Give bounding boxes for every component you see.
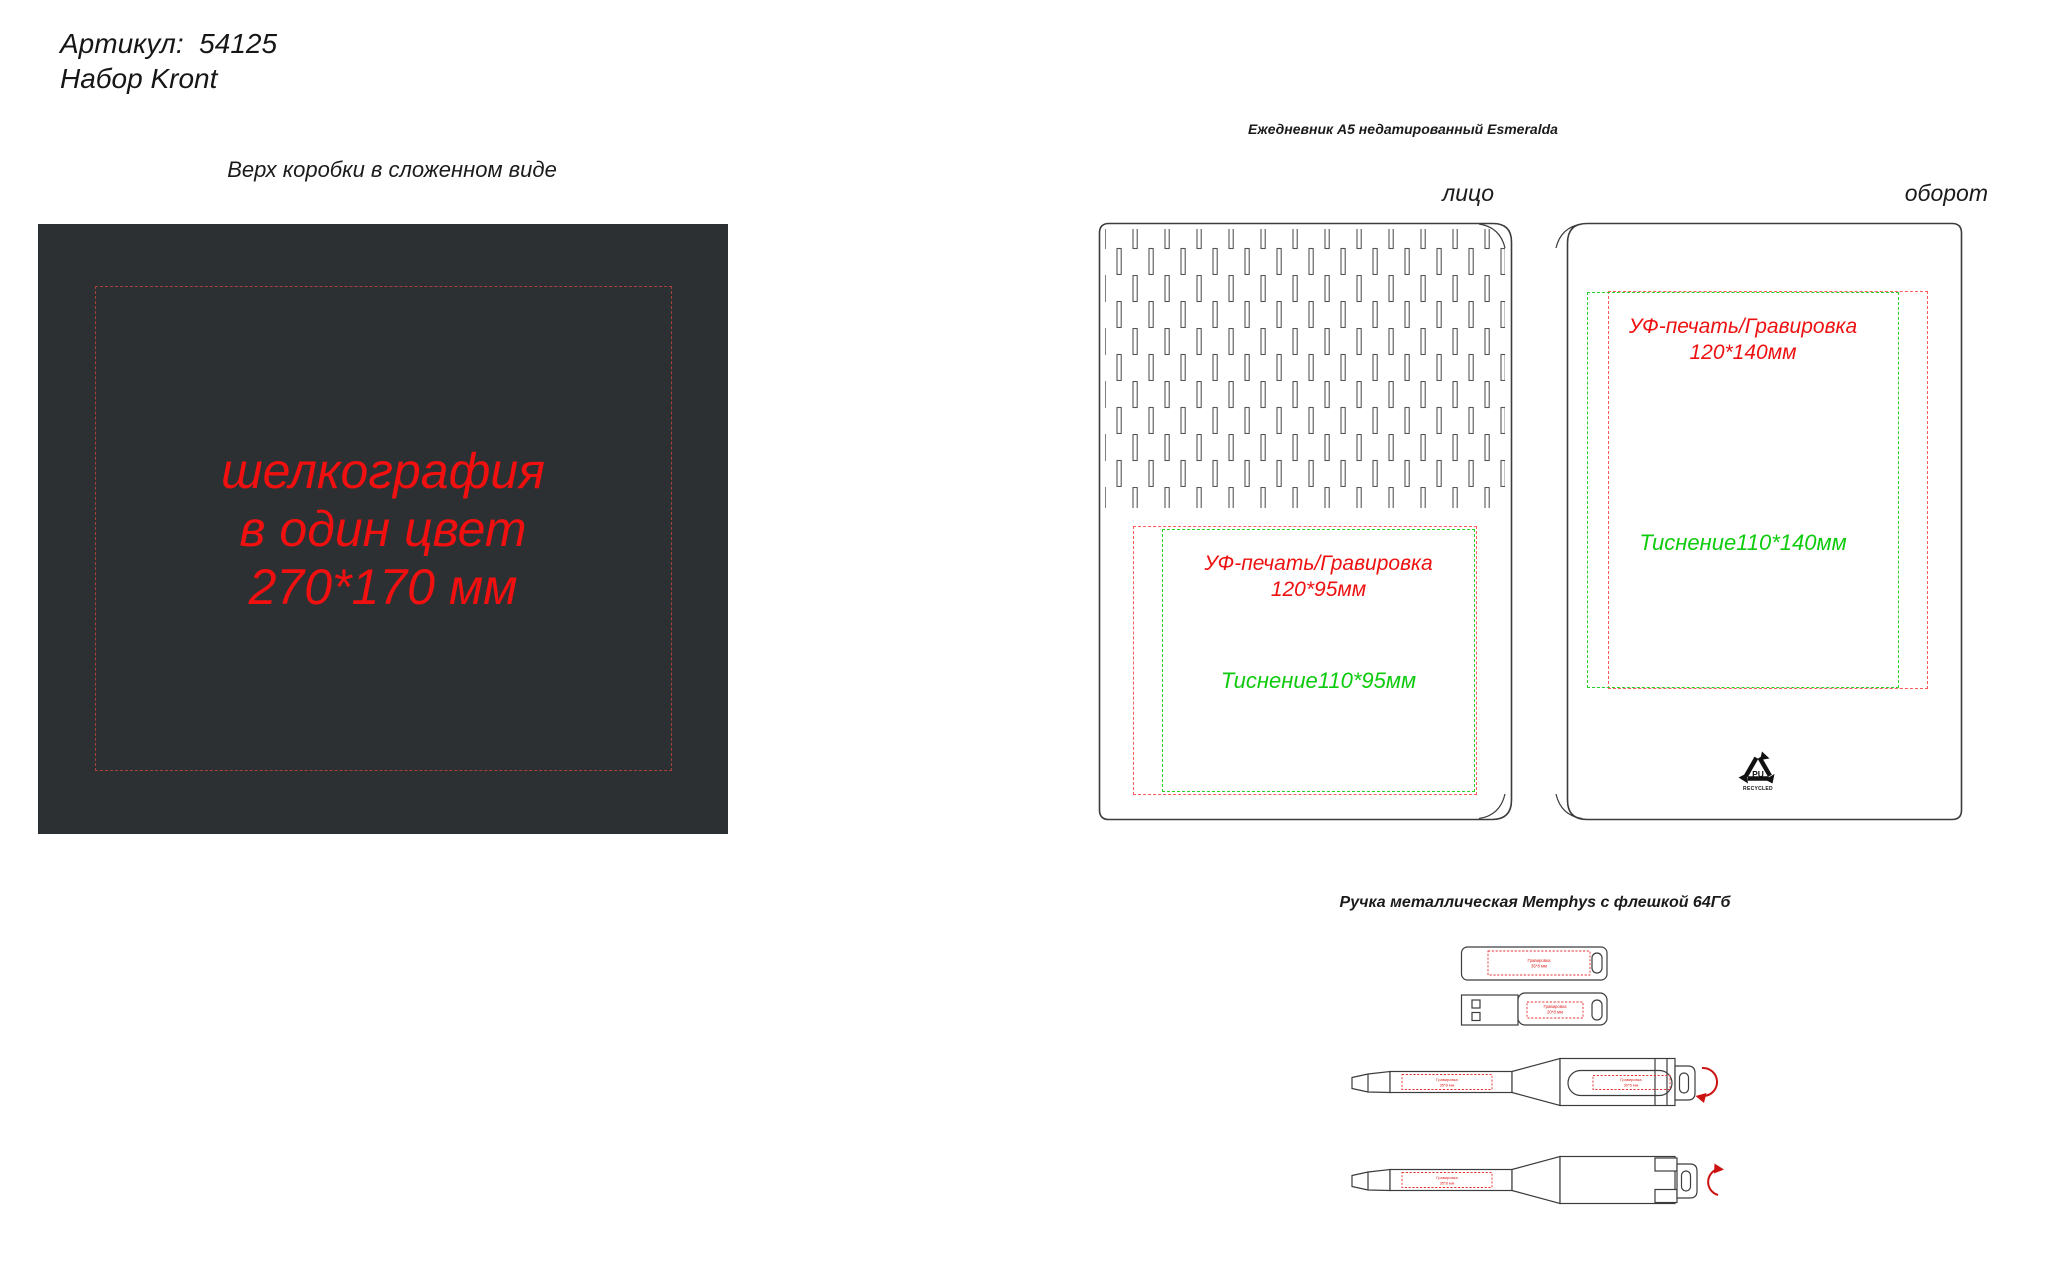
- box-top-view: шелкография в один цвет 270*170 мм: [38, 224, 728, 834]
- silkscreen-note-line: в один цвет: [38, 500, 728, 558]
- engraving-size: 30*5 мм: [1624, 1083, 1639, 1088]
- pen-section-caption: Ручка металлическая Memphys с флешкой 64…: [1325, 894, 1745, 912]
- back-emboss-note: Тиснение110*140мм: [1587, 530, 1899, 556]
- article-number: Артикул: 54125: [60, 26, 277, 61]
- diary-back-label: оборот: [1838, 180, 1988, 207]
- pen-clip: [1568, 1071, 1672, 1096]
- pen-back-side-view: Гравировка 35*8 мм: [1350, 1153, 1722, 1209]
- front-uv-size: 120*95мм: [1162, 577, 1475, 603]
- engraving-note: Гравировка: [1436, 1077, 1458, 1082]
- lanyard-slot-icon: [1682, 1171, 1691, 1191]
- silkscreen-note-line: 270*170 мм: [38, 558, 728, 616]
- engraving-size: 35*8 мм: [1440, 1181, 1455, 1186]
- header: Артикул: 54125 Набор Kront: [60, 26, 277, 96]
- back-uv-size: 120*140мм: [1587, 340, 1899, 366]
- pen-clip-side-view: Гравировка 35*8 мм Гравировка 30*5 мм: [1350, 1055, 1722, 1111]
- engraving-size: 35*8 мм: [1440, 1083, 1455, 1088]
- engraving-size: 20*8 мм: [1547, 1010, 1563, 1015]
- back-uv-method: УФ-печать/Гравировка: [1587, 314, 1899, 340]
- box-section-caption: Верх коробки в сложенном виде: [182, 157, 602, 183]
- rotate-arrow-icon: [1696, 1068, 1718, 1103]
- recycle-material-code: PU: [1752, 769, 1764, 779]
- usb-plug-icon: [1462, 995, 1519, 1025]
- diary-front-label: лицо: [1344, 180, 1494, 207]
- clip-mount-notch: [1655, 1190, 1677, 1203]
- clip-mount-notch: [1655, 1158, 1677, 1171]
- engraving-note: Гравировка: [1620, 1077, 1642, 1082]
- pen-tip: [1352, 1170, 1390, 1191]
- pen-tip: [1352, 1072, 1390, 1093]
- engraving-size: 35*8 мм: [1531, 964, 1547, 969]
- engraving-note: Гравировка: [1528, 958, 1552, 963]
- diary-section-caption: Ежедневник А5 недатированный Esmeralda: [1188, 121, 1618, 137]
- engraving-note: Гравировка: [1436, 1175, 1458, 1180]
- product-name: Набор Kront: [60, 61, 277, 96]
- silkscreen-note: шелкография в один цвет 270*170 мм: [38, 442, 728, 616]
- lanyard-slot-icon: [1592, 953, 1602, 973]
- recycle-caption: RECYCLED: [1743, 786, 1773, 792]
- flash-drive-top-view: Гравировка 35*8 мм: [1461, 946, 1608, 981]
- cover-dash-pattern: [1105, 229, 1505, 508]
- silkscreen-note-line: шелкография: [38, 442, 728, 500]
- print-spec-sheet: Артикул: 54125 Набор Kront Верх коробки …: [0, 0, 2057, 1277]
- lanyard-slot-icon: [1592, 1000, 1602, 1020]
- flash-drive-connector-view: Гравировка 20*8 мм: [1461, 991, 1608, 1027]
- front-uv-method: УФ-печать/Гравировка: [1162, 551, 1475, 577]
- engraving-note: Гравировка: [1544, 1004, 1568, 1009]
- rotate-arrow-icon: [1708, 1164, 1724, 1196]
- front-uv-note: УФ-печать/Гравировка 120*95мм: [1162, 551, 1475, 603]
- lanyard-slot-icon: [1680, 1073, 1689, 1093]
- front-emboss-note: Тиснение110*95мм: [1162, 668, 1475, 694]
- back-uv-note: УФ-печать/Гравировка 120*140мм: [1587, 314, 1899, 366]
